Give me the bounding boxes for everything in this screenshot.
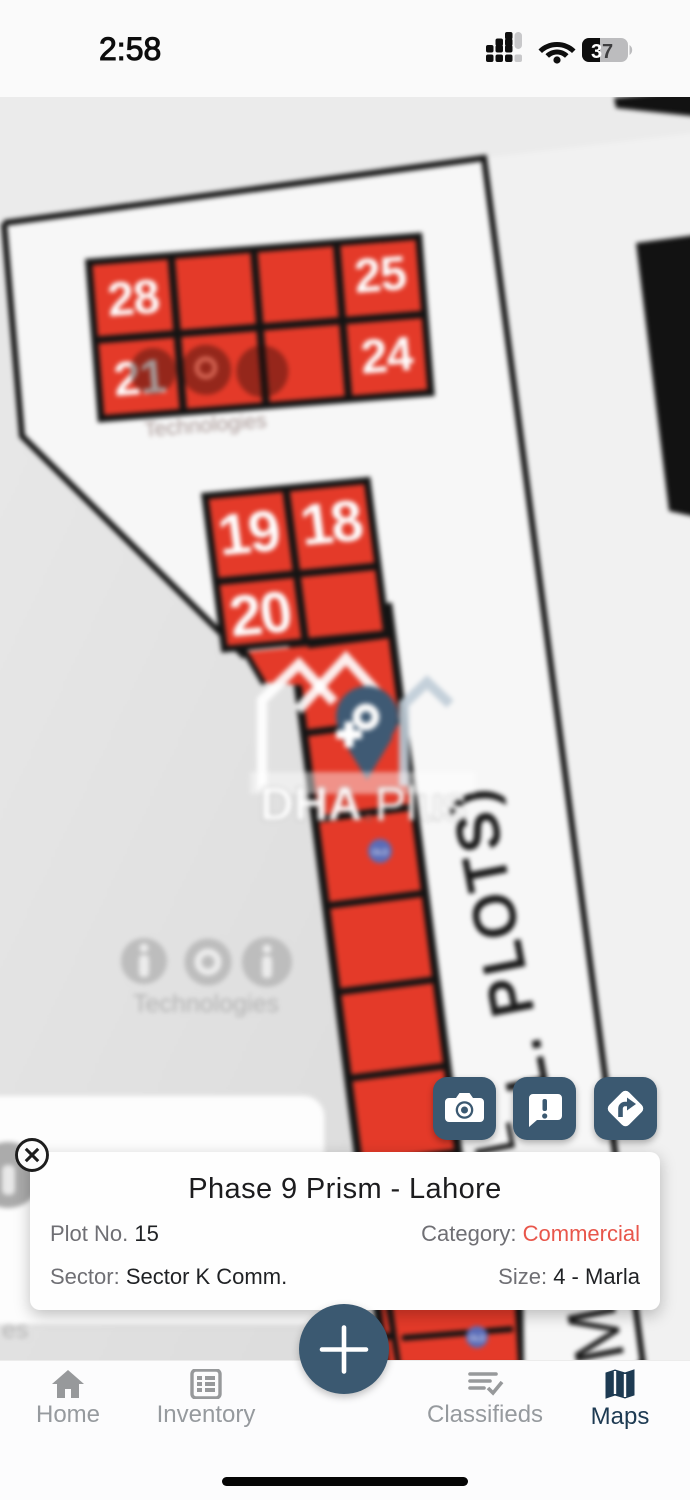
svg-text:18: 18 — [297, 489, 366, 558]
svg-text:28: 28 — [106, 270, 162, 327]
svg-text:7: 7 — [602, 41, 613, 63]
svg-text:OLD: OLD — [372, 848, 389, 857]
svg-text:es: es — [2, 1316, 28, 1344]
svg-text:24: 24 — [359, 328, 416, 385]
svg-text:19: 19 — [214, 499, 283, 568]
svg-text:OLD: OLD — [469, 1334, 486, 1343]
svg-text:DHA.Plus: DHA.Plus — [260, 777, 466, 830]
svg-text:Technologies: Technologies — [133, 990, 279, 1018]
svg-text:3: 3 — [591, 41, 602, 63]
svg-text:20: 20 — [226, 580, 294, 649]
svg-text:25: 25 — [353, 247, 409, 304]
